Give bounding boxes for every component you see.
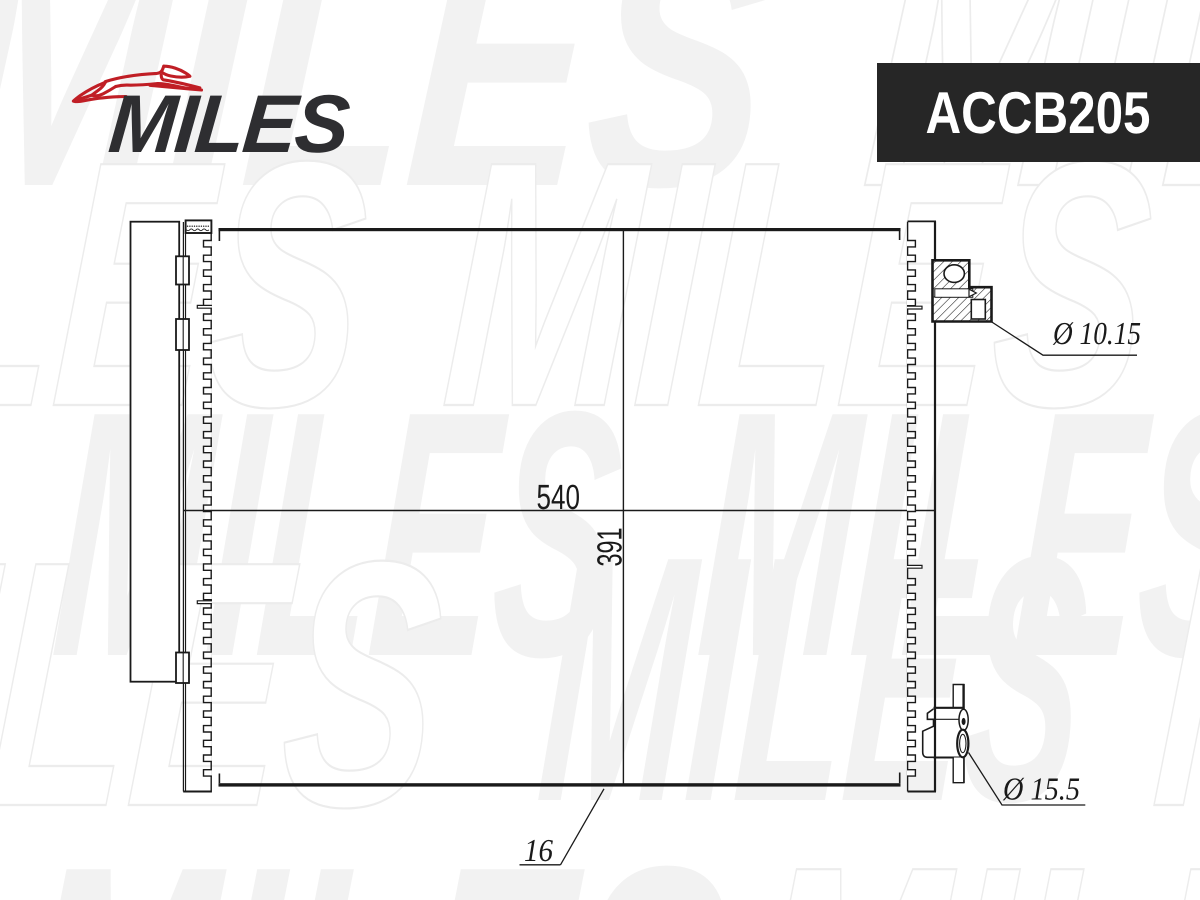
svg-text:Ø 15.5: Ø 15.5 bbox=[1002, 771, 1080, 807]
svg-text:MILES: MILES bbox=[740, 794, 1200, 900]
svg-text:16: 16 bbox=[524, 832, 553, 868]
svg-text:391: 391 bbox=[591, 528, 630, 567]
svg-text:Ø 10.15: Ø 10.15 bbox=[1052, 315, 1141, 351]
svg-text:MILES: MILES bbox=[105, 79, 352, 170]
svg-text:ACCB205: ACCB205 bbox=[926, 80, 1151, 146]
svg-text:540: 540 bbox=[537, 478, 581, 517]
svg-text:MILES: MILES bbox=[10, 794, 738, 900]
